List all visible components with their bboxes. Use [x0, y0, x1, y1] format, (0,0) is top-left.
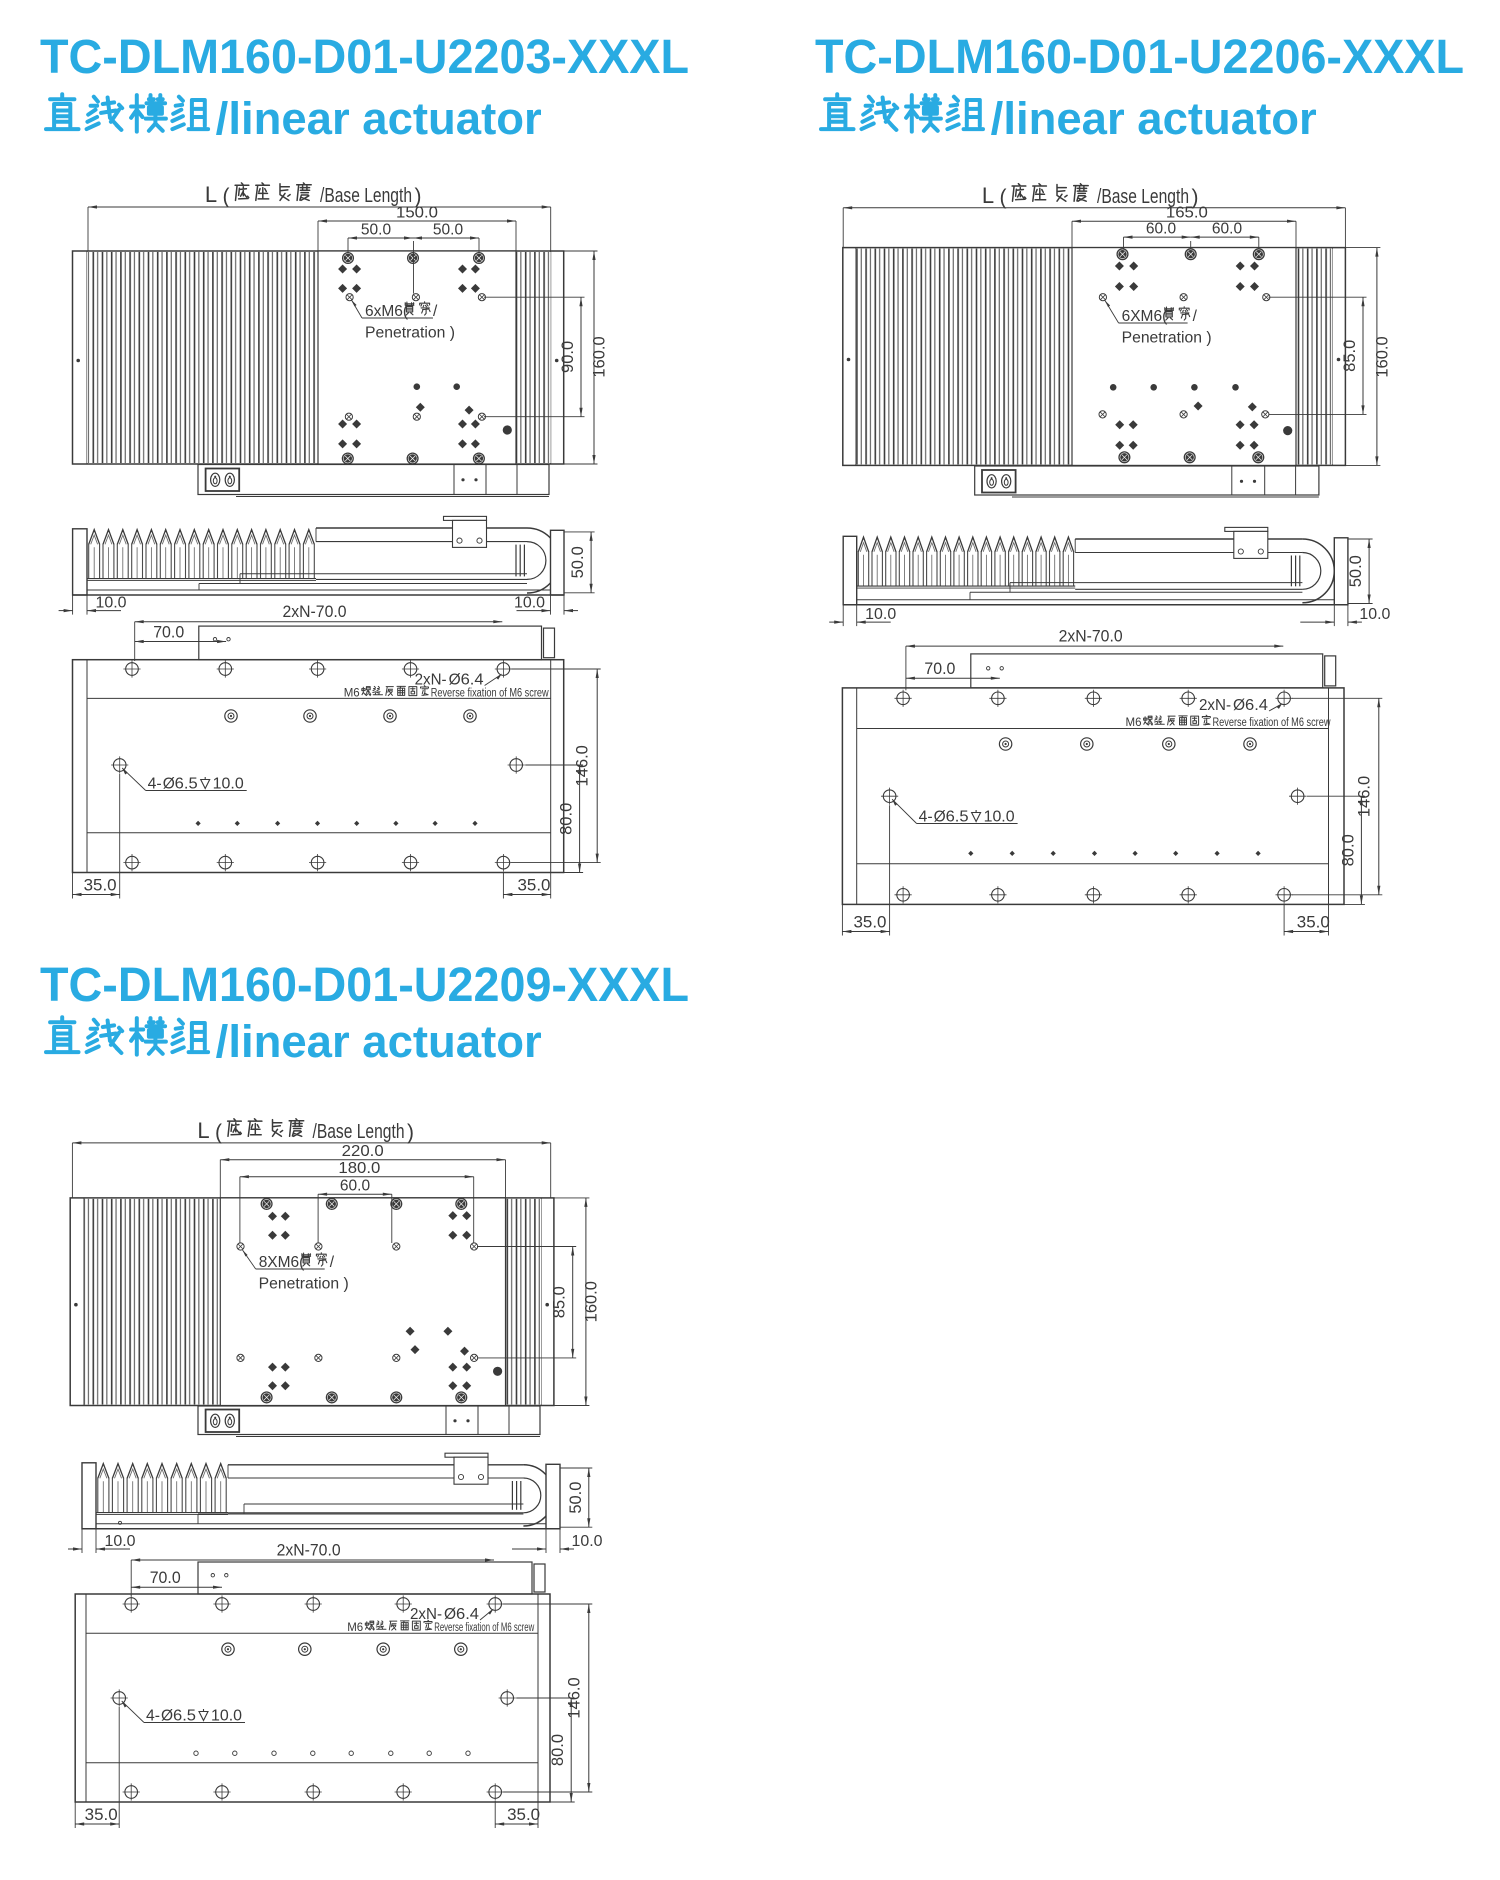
- svg-text:TC-DLM160-D01-U2206-XXXL: TC-DLM160-D01-U2206-XXXL: [815, 30, 1464, 84]
- svg-text:60.0: 60.0: [1146, 221, 1177, 238]
- svg-text:M6: M6: [1126, 717, 1142, 729]
- svg-text:35.0: 35.0: [85, 1806, 118, 1824]
- svg-text:220.0: 220.0: [342, 1143, 384, 1160]
- svg-text:60.0: 60.0: [1212, 221, 1243, 238]
- svg-text:146.0: 146.0: [574, 745, 592, 786]
- svg-text:90.0: 90.0: [559, 341, 577, 373]
- svg-text:Ø: Ø: [161, 1708, 173, 1725]
- svg-text:/: /: [433, 303, 438, 320]
- svg-text:4-: 4-: [146, 1708, 160, 1725]
- svg-text:Reverse fixation of M6 screw: Reverse fixation of M6 screw: [1213, 717, 1332, 729]
- svg-text:6.5: 6.5: [946, 809, 969, 826]
- svg-text:4-: 4-: [148, 776, 162, 793]
- svg-text:Penetration ): Penetration ): [1122, 330, 1212, 347]
- svg-text:50.0: 50.0: [1347, 555, 1365, 587]
- svg-text:160.0: 160.0: [582, 1281, 600, 1322]
- svg-text:10.0: 10.0: [213, 776, 244, 793]
- svg-text:6.5: 6.5: [175, 776, 198, 793]
- svg-text:10.0: 10.0: [105, 1533, 136, 1550]
- svg-text:/: /: [1193, 308, 1198, 325]
- svg-text:Reverse fixation of M6 screw: Reverse fixation of M6 screw: [434, 1622, 534, 1634]
- svg-text:80.0: 80.0: [549, 1734, 567, 1766]
- svg-text:/: /: [330, 1254, 335, 1271]
- svg-text:L: L: [982, 183, 994, 208]
- svg-text:Penetration ): Penetration ): [365, 325, 455, 342]
- svg-text:8XM6(: 8XM6(: [259, 1254, 305, 1271]
- svg-text:6.4: 6.4: [461, 672, 484, 689]
- svg-text:10.0: 10.0: [1359, 606, 1390, 623]
- svg-text:2xN-: 2xN-: [1199, 697, 1231, 714]
- svg-text:70.0: 70.0: [924, 660, 955, 678]
- svg-text:10.0: 10.0: [984, 809, 1015, 826]
- svg-text:50.0: 50.0: [433, 222, 464, 239]
- svg-text:2xN-70.0: 2xN-70.0: [277, 1542, 341, 1560]
- svg-text:2xN-70.0: 2xN-70.0: [1059, 628, 1123, 646]
- svg-text:80.0: 80.0: [1339, 834, 1357, 866]
- svg-text:6xM6(: 6xM6(: [365, 303, 409, 320]
- svg-text:Ø: Ø: [444, 1606, 456, 1623]
- svg-text:Ø: Ø: [449, 672, 461, 689]
- svg-text:50.0: 50.0: [361, 222, 392, 239]
- svg-text:10.0: 10.0: [211, 1708, 242, 1725]
- svg-text:L: L: [197, 1118, 209, 1143]
- svg-text:50.0: 50.0: [567, 1482, 585, 1514]
- svg-text:6XM6(: 6XM6(: [1122, 308, 1168, 325]
- svg-text:85.0: 85.0: [1341, 340, 1359, 372]
- svg-text:70.0: 70.0: [150, 1569, 181, 1587]
- svg-text:160.0: 160.0: [591, 336, 609, 377]
- svg-text:M6: M6: [347, 1622, 363, 1634]
- svg-text:35.0: 35.0: [84, 877, 117, 895]
- svg-text:4-: 4-: [919, 809, 933, 826]
- svg-text:6.4: 6.4: [1245, 697, 1268, 714]
- svg-text:35.0: 35.0: [518, 877, 551, 895]
- svg-text:10.0: 10.0: [514, 595, 545, 612]
- svg-text:L: L: [205, 182, 217, 207]
- svg-text:80.0: 80.0: [558, 803, 576, 835]
- svg-text:180.0: 180.0: [338, 1160, 380, 1177]
- svg-text:60.0: 60.0: [340, 1178, 371, 1195]
- svg-text:10.0: 10.0: [96, 595, 127, 612]
- svg-text:35.0: 35.0: [507, 1806, 540, 1824]
- svg-text:150.0: 150.0: [396, 205, 438, 222]
- svg-text:Penetration ): Penetration ): [259, 1276, 349, 1293]
- svg-text:TC-DLM160-D01-U2203-XXXL: TC-DLM160-D01-U2203-XXXL: [40, 30, 689, 84]
- svg-text:M6: M6: [344, 688, 360, 700]
- svg-text:Ø: Ø: [934, 809, 946, 826]
- svg-text:(: (: [1000, 186, 1007, 209]
- svg-text:10.0: 10.0: [572, 1533, 603, 1550]
- svg-text:(: (: [223, 185, 230, 208]
- svg-text:6.5: 6.5: [173, 1708, 196, 1725]
- svg-text:50.0: 50.0: [569, 546, 587, 578]
- svg-text:70.0: 70.0: [153, 624, 184, 642]
- svg-text:35.0: 35.0: [1297, 914, 1330, 932]
- svg-text:/linear actuator: /linear actuator: [991, 93, 1317, 144]
- svg-text:35.0: 35.0: [854, 914, 887, 932]
- svg-text:Reverse fixation of M6 screw: Reverse fixation of M6 screw: [431, 688, 550, 700]
- svg-text:): ): [407, 1121, 414, 1144]
- svg-text:6.4: 6.4: [456, 1606, 479, 1623]
- svg-text:Ø: Ø: [163, 776, 175, 793]
- svg-text:10.0: 10.0: [865, 606, 896, 623]
- svg-text:TC-DLM160-D01-U2209-XXXL: TC-DLM160-D01-U2209-XXXL: [40, 958, 689, 1012]
- svg-text:85.0: 85.0: [551, 1286, 569, 1318]
- svg-text:/linear actuator: /linear actuator: [216, 93, 542, 144]
- svg-text:165.0: 165.0: [1166, 205, 1208, 222]
- svg-text:2xN-: 2xN-: [415, 672, 447, 689]
- svg-text:/Base Length: /Base Length: [313, 1121, 405, 1143]
- svg-text:2xN-: 2xN-: [410, 1606, 442, 1623]
- svg-text:Ø: Ø: [1233, 697, 1245, 714]
- svg-text:(: (: [215, 1121, 222, 1144]
- svg-text:/linear actuator: /linear actuator: [216, 1016, 542, 1067]
- svg-text:160.0: 160.0: [1373, 336, 1391, 377]
- svg-text:2xN-70.0: 2xN-70.0: [283, 603, 347, 621]
